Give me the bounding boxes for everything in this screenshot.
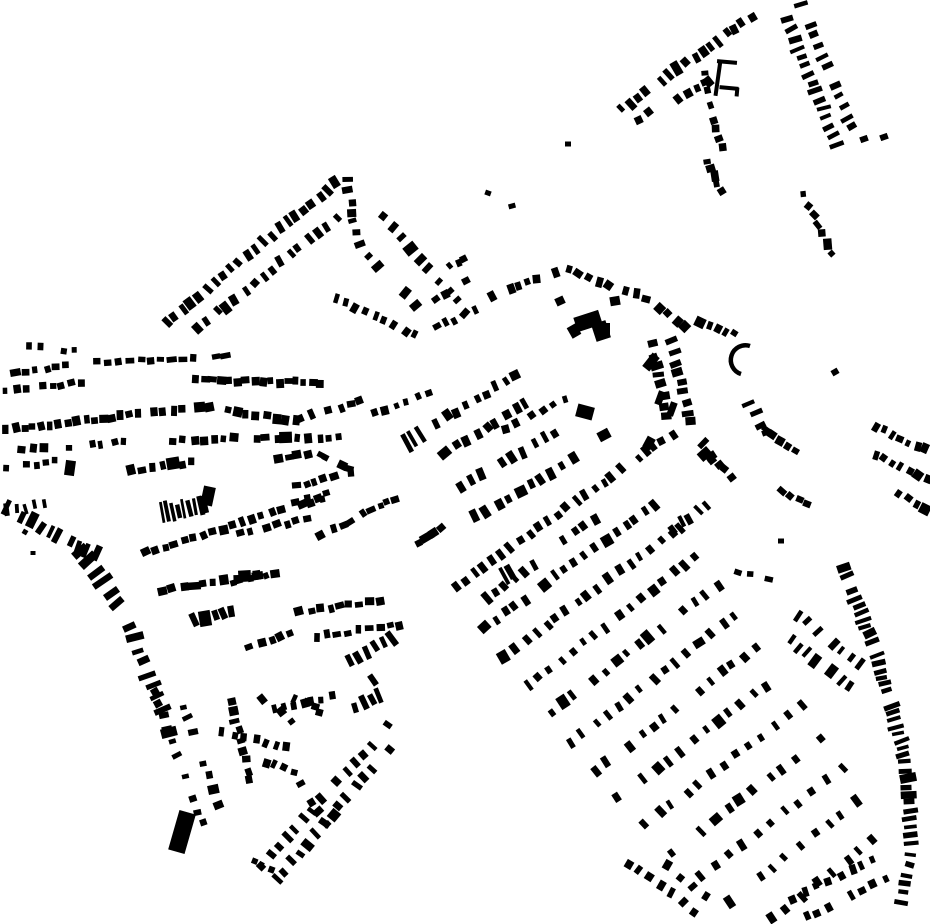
building-footprint xyxy=(47,421,53,430)
building-footprint xyxy=(614,701,624,712)
building-footprint xyxy=(501,409,512,421)
building-footprint xyxy=(774,435,786,447)
building-footprint xyxy=(788,35,803,45)
building-footprint xyxy=(97,441,103,450)
building-footprint xyxy=(523,679,533,691)
building-footprint xyxy=(717,664,729,677)
building-footprint xyxy=(17,446,26,454)
building-footprint xyxy=(734,698,746,710)
building-footprint xyxy=(122,621,137,632)
building-footprint xyxy=(505,450,518,464)
building-footprint xyxy=(157,357,164,362)
building-footprint xyxy=(603,279,615,291)
building-footprint xyxy=(603,709,613,720)
building-footprint xyxy=(89,440,96,448)
building-footprint xyxy=(492,615,501,625)
building-footprint xyxy=(799,61,810,69)
building-footprint xyxy=(589,542,599,553)
building-footprint xyxy=(251,411,259,420)
building-footprint xyxy=(125,410,133,418)
building-footprint xyxy=(846,121,857,131)
building-footprint xyxy=(697,437,709,449)
building-footprint xyxy=(678,897,689,908)
building-footprint xyxy=(495,548,506,560)
building-footprint xyxy=(866,834,877,846)
building-footprint xyxy=(138,356,146,362)
building-footprint xyxy=(414,253,428,267)
building-footprint xyxy=(601,572,614,586)
building-footprint xyxy=(681,410,693,417)
building-footprint xyxy=(888,459,896,468)
building-footprint xyxy=(471,305,479,315)
building-footprint xyxy=(257,235,269,247)
building-footprint xyxy=(823,877,832,887)
building-footprint xyxy=(682,398,693,407)
building-footprint xyxy=(370,408,379,417)
building-footprint xyxy=(897,744,909,751)
building-footprint xyxy=(787,634,796,645)
building-footprint xyxy=(804,201,814,211)
building-footprint xyxy=(689,907,699,917)
building-footprint xyxy=(453,295,462,304)
building-footprint xyxy=(478,504,491,519)
building-footprint xyxy=(667,848,676,858)
building-footprint xyxy=(616,104,625,113)
building-footprint xyxy=(213,800,225,811)
building-footprint xyxy=(709,116,718,125)
building-footprint xyxy=(10,368,22,377)
building-footprint xyxy=(329,691,336,700)
building-footprint xyxy=(600,755,611,768)
building-footprint xyxy=(904,852,916,857)
building-footprint xyxy=(678,559,691,572)
building-footprint xyxy=(395,621,404,631)
building-footprint xyxy=(42,499,47,508)
building-footprint xyxy=(544,665,553,674)
building-footprint xyxy=(633,93,644,104)
building-footprint xyxy=(518,446,528,460)
building-footprint xyxy=(712,125,720,133)
building-footprint xyxy=(602,668,611,677)
building-footprint xyxy=(706,676,715,686)
building-footprint xyxy=(159,461,166,470)
building-footprint xyxy=(512,402,523,415)
building-footprint xyxy=(657,76,668,87)
building-footprint xyxy=(902,815,917,822)
building-footprint xyxy=(816,733,826,743)
building-footprint xyxy=(825,819,835,829)
building-footprint xyxy=(62,361,69,368)
building-footprint xyxy=(669,657,680,669)
building-footprint xyxy=(316,380,324,388)
building-footprint xyxy=(202,283,214,294)
building-footprint xyxy=(434,277,443,286)
building-footprint xyxy=(72,347,77,353)
building-footprint xyxy=(823,238,832,250)
building-footprint xyxy=(162,544,169,552)
building-footprint xyxy=(251,571,263,580)
building-footprint xyxy=(451,581,462,593)
building-footprint xyxy=(639,85,651,97)
arc-building xyxy=(731,345,750,374)
building-footprint xyxy=(701,70,708,75)
building-footprint xyxy=(894,736,910,746)
building-footprint xyxy=(871,422,881,433)
building-footprint xyxy=(37,421,46,431)
building-footprint xyxy=(904,439,911,447)
building-footprint xyxy=(34,462,40,469)
building-footprint xyxy=(237,746,248,756)
building-footprint xyxy=(461,276,471,285)
building-footprint xyxy=(622,649,630,658)
building-footprint xyxy=(342,766,353,777)
building-footprint xyxy=(225,263,235,273)
building-footprint xyxy=(29,423,36,429)
building-footprint xyxy=(22,529,29,536)
building-footprint xyxy=(766,818,775,827)
building-footprint xyxy=(644,871,655,882)
building-footprint xyxy=(271,519,281,529)
building-footprint xyxy=(562,395,569,403)
building-footprint xyxy=(260,434,269,441)
building-footprint xyxy=(349,757,361,769)
building-footprint xyxy=(721,327,729,337)
building-footprint xyxy=(735,17,745,28)
building-footprint xyxy=(559,535,568,545)
building-footprint xyxy=(756,871,766,882)
building-footprint xyxy=(279,763,288,772)
building-footprint xyxy=(235,529,245,538)
building-footprint xyxy=(923,474,930,484)
building-footprint xyxy=(540,431,550,443)
building-footprint xyxy=(166,583,176,593)
building-footprint xyxy=(847,653,856,663)
building-footprint xyxy=(270,569,280,578)
building-footprint xyxy=(724,849,734,859)
building-footprint xyxy=(703,159,711,165)
building-footprint xyxy=(224,406,232,414)
building-footprint xyxy=(474,394,482,403)
building-footprint xyxy=(310,478,317,487)
building-footprint xyxy=(358,749,369,760)
building-footprint xyxy=(300,838,315,852)
building-footprint xyxy=(108,596,124,611)
building-footprint xyxy=(813,96,827,106)
building-footprint xyxy=(414,392,422,401)
building-footprint xyxy=(903,798,914,804)
building-footprint xyxy=(789,45,804,54)
building-footprint xyxy=(714,60,723,96)
building-footprint xyxy=(268,507,277,517)
building-footprint xyxy=(272,414,281,425)
building-footprint xyxy=(580,590,592,603)
building-footprint xyxy=(622,692,634,704)
building-footprint xyxy=(672,93,683,105)
building-footprint xyxy=(638,818,649,829)
building-footprint xyxy=(590,513,601,526)
building-footprint xyxy=(753,828,763,838)
building-footprint xyxy=(622,286,630,296)
building-footprint xyxy=(837,871,847,881)
building-footprint xyxy=(568,557,578,568)
building-footprint xyxy=(692,636,706,649)
building-footprint xyxy=(304,433,313,444)
building-footprint xyxy=(677,378,687,386)
building-footprint xyxy=(312,227,324,240)
building-footprint xyxy=(584,272,594,282)
building-footprint xyxy=(545,467,557,481)
building-footprint xyxy=(182,713,193,722)
building-footprint xyxy=(334,601,344,609)
building-footprint xyxy=(657,624,667,635)
building-footprint xyxy=(520,594,531,606)
building-footprint xyxy=(256,693,268,705)
building-footprint xyxy=(157,586,168,596)
building-footprint xyxy=(169,438,177,445)
building-footprint xyxy=(384,744,395,755)
building-footprint xyxy=(635,454,644,463)
building-footprint xyxy=(689,734,699,745)
building-footprint xyxy=(579,551,588,561)
building-footprint xyxy=(824,902,834,913)
building-footprint xyxy=(565,142,571,147)
building-footprint xyxy=(869,651,884,660)
building-footprint xyxy=(362,645,372,660)
building-footprint xyxy=(168,738,176,745)
building-footprint xyxy=(554,295,566,306)
building-footprint xyxy=(711,860,722,871)
building-footprint xyxy=(511,418,521,429)
building-footprint xyxy=(624,740,636,753)
building-footprint xyxy=(544,620,554,631)
building-footprint xyxy=(565,265,573,274)
building-footprint xyxy=(179,435,186,443)
building-footprint xyxy=(262,758,272,769)
building-footprint xyxy=(822,123,835,133)
building-footprint xyxy=(316,603,325,612)
building-footprint xyxy=(78,379,85,387)
building-footprint xyxy=(681,648,692,659)
building-footprint xyxy=(66,445,72,451)
building-footprint xyxy=(352,229,360,235)
building-footprint xyxy=(735,87,740,96)
building-footprint xyxy=(166,456,181,470)
building-footprint xyxy=(276,379,284,388)
building-footprint xyxy=(491,587,500,597)
building-footprint xyxy=(200,485,216,506)
building-footprint xyxy=(149,463,156,472)
building-footprint xyxy=(730,329,739,337)
building-footprint xyxy=(645,544,655,555)
building-footprint xyxy=(383,720,393,730)
building-footprint xyxy=(242,755,251,762)
building-footprint xyxy=(135,409,141,418)
building-footprint xyxy=(670,704,679,714)
building-footprint xyxy=(204,402,215,413)
building-footprint xyxy=(291,450,301,460)
building-footprint xyxy=(657,576,667,587)
building-footprint xyxy=(797,699,808,711)
building-footprint xyxy=(761,681,772,693)
building-footprint xyxy=(839,102,850,111)
building-footprint xyxy=(367,764,378,774)
building-footprint xyxy=(3,465,9,472)
building-footprint xyxy=(538,405,548,415)
building-footprint xyxy=(52,457,58,463)
building-footprint xyxy=(635,684,643,693)
building-footprint xyxy=(802,616,812,626)
building-footprint xyxy=(555,694,571,710)
building-footprint xyxy=(274,842,284,852)
building-footprint xyxy=(867,878,877,889)
building-footprint xyxy=(550,569,560,580)
building-footprint xyxy=(692,779,702,790)
building-footprint xyxy=(490,380,499,392)
building-footprint xyxy=(805,21,818,30)
building-footprint xyxy=(218,524,229,535)
building-footprint xyxy=(848,864,857,875)
building-footprint xyxy=(185,500,193,517)
building-footprint xyxy=(895,750,909,759)
building-footprint xyxy=(365,505,376,514)
building-footprint xyxy=(307,408,316,420)
building-footprint xyxy=(242,286,251,297)
building-footprint xyxy=(654,805,667,818)
building-footprint xyxy=(304,233,315,245)
building-footprint xyxy=(266,849,277,860)
building-footprint xyxy=(648,499,661,512)
building-footprint xyxy=(207,376,217,383)
building-footprint xyxy=(811,828,821,838)
building-footprint xyxy=(238,516,247,527)
building-footprint xyxy=(226,377,232,384)
building-footprint xyxy=(757,733,765,742)
building-footprint xyxy=(309,827,321,839)
building-footprint xyxy=(879,133,889,141)
building-footprint xyxy=(254,435,261,443)
building-footprint xyxy=(813,220,823,230)
building-footprint xyxy=(641,295,651,304)
building-footprint xyxy=(859,135,869,143)
building-footprint xyxy=(402,398,408,406)
building-footprint xyxy=(232,732,239,740)
building-footprint xyxy=(706,767,717,779)
building-footprint xyxy=(401,326,412,337)
building-footprint xyxy=(614,609,626,621)
building-footprint xyxy=(501,605,511,616)
building-footprint xyxy=(466,474,476,486)
building-footprint xyxy=(557,461,566,471)
building-footprint xyxy=(693,316,707,330)
building-footprint xyxy=(431,418,440,430)
building-footprint xyxy=(64,419,72,427)
building-footprint xyxy=(904,493,914,503)
building-footprint xyxy=(486,554,497,566)
building-footprint xyxy=(559,565,568,574)
building-footprint xyxy=(702,500,712,510)
building-footprint xyxy=(330,775,342,787)
building-footprint xyxy=(276,505,286,515)
building-footprint xyxy=(208,527,217,536)
building-footprint xyxy=(694,870,705,882)
building-footprint xyxy=(765,911,777,924)
building-footprint xyxy=(660,665,669,675)
building-footprint xyxy=(634,865,644,875)
building-footprint xyxy=(318,697,324,704)
building-footprint xyxy=(693,505,704,516)
building-footprint xyxy=(779,853,788,862)
building-footprint xyxy=(482,390,492,400)
building-footprint xyxy=(695,686,705,696)
building-footprint xyxy=(42,459,49,466)
building-footprint xyxy=(827,250,835,258)
building-footprint xyxy=(285,854,297,866)
building-footprint xyxy=(23,461,30,467)
building-footprint xyxy=(35,521,47,535)
building-footprint xyxy=(291,516,300,525)
building-footprint xyxy=(596,428,611,442)
building-footprint xyxy=(532,672,542,682)
building-footprint xyxy=(323,629,330,639)
building-footprint xyxy=(549,400,557,408)
building-footprint xyxy=(719,618,730,630)
building-footprint xyxy=(816,104,831,111)
building-footprint xyxy=(217,376,227,385)
building-footprint xyxy=(351,780,363,791)
building-footprint xyxy=(341,186,353,194)
building-footprint xyxy=(450,317,458,326)
building-footprint xyxy=(271,704,278,713)
building-footprint xyxy=(281,831,294,844)
building-footprint xyxy=(338,403,346,413)
building-footprint xyxy=(532,274,541,283)
building-footprint xyxy=(788,894,798,904)
building-footprint xyxy=(15,504,19,513)
building-footprint xyxy=(736,838,748,851)
building-footprint xyxy=(551,267,561,279)
building-footprint xyxy=(138,670,157,681)
building-footprint xyxy=(874,668,887,676)
building-footprint xyxy=(298,812,310,823)
building-footprint xyxy=(29,443,37,452)
building-footprint xyxy=(432,322,442,331)
building-footprint xyxy=(189,533,197,542)
building-footprint xyxy=(900,785,911,791)
building-footprint xyxy=(527,410,537,420)
building-footprint xyxy=(147,357,155,365)
building-footprint xyxy=(369,640,380,653)
building-footprint xyxy=(626,603,635,612)
building-footprint xyxy=(869,855,876,863)
building-footprint xyxy=(704,628,715,640)
building-footprint xyxy=(577,520,588,531)
building-footprint xyxy=(296,779,306,788)
building-footprint xyxy=(666,887,675,899)
building-footprint xyxy=(766,772,775,782)
building-footprint xyxy=(280,415,290,426)
building-footprint xyxy=(717,186,727,196)
building-footprint xyxy=(824,663,839,679)
building-footprint xyxy=(292,377,298,385)
building-footprint xyxy=(850,794,863,808)
building-footprint xyxy=(744,741,753,750)
building-footprint xyxy=(813,42,824,51)
building-footprint xyxy=(771,721,780,731)
building-footprint xyxy=(125,358,134,364)
building-footprint xyxy=(308,607,316,615)
building-footprint xyxy=(131,648,143,656)
building-footprint xyxy=(711,714,726,730)
